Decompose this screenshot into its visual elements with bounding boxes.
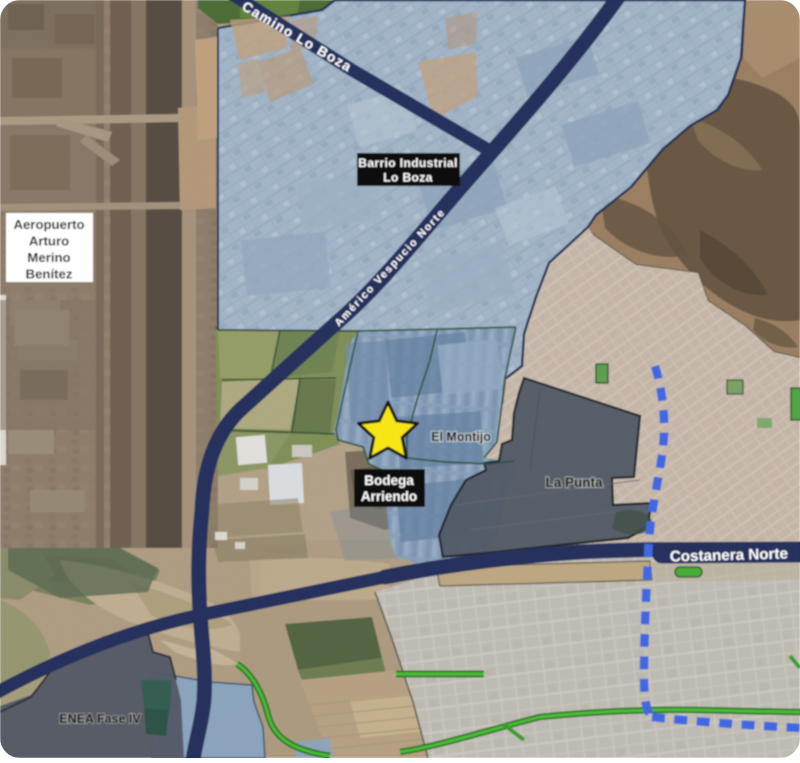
svg-text:Arriendo: Arriendo <box>361 489 417 504</box>
svg-text:La Punta: La Punta <box>545 475 602 490</box>
svg-text:Benítez: Benítez <box>26 267 73 282</box>
svg-text:Barrio Industrial: Barrio Industrial <box>358 156 457 170</box>
svg-text:Lo Boza: Lo Boza <box>383 171 432 185</box>
svg-text:Merino: Merino <box>27 250 70 265</box>
svg-text:El Montijo: El Montijo <box>431 430 491 444</box>
svg-text:Arturo: Arturo <box>29 234 69 249</box>
svg-text:Bodega: Bodega <box>364 473 414 488</box>
svg-text:Aeropuerto: Aeropuerto <box>13 217 84 232</box>
svg-text:Costanera Norte: Costanera Norte <box>670 545 789 565</box>
svg-text:ENEA Fase IV: ENEA Fase IV <box>59 712 141 726</box>
